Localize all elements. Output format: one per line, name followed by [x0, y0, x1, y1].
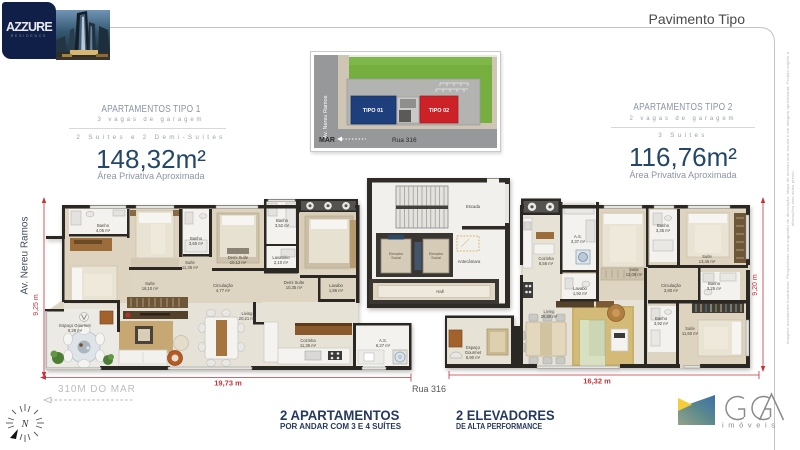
- svg-text:3,25 m²: 3,25 m²: [707, 286, 722, 291]
- svg-text:N: N: [21, 419, 30, 430]
- svg-text:3,65 m²: 3,65 m²: [189, 241, 204, 246]
- svg-text:9,25 m: 9,25 m: [33, 294, 40, 316]
- svg-text:26,86 m²: 26,86 m²: [541, 314, 558, 319]
- svg-text:3,52 m²: 3,52 m²: [275, 223, 290, 228]
- svg-text:TIPO 01: TIPO 01: [363, 108, 383, 114]
- svg-text:Antecâmara: Antecâmara: [458, 259, 481, 264]
- svg-text:Hall: Hall: [436, 289, 443, 294]
- svg-text:4,77 m²: 4,77 m²: [216, 288, 231, 293]
- svg-text:16,32 m: 16,32 m: [583, 377, 611, 386]
- svg-text:19,73 m: 19,73 m: [214, 379, 242, 388]
- svg-text:imóveis: imóveis: [722, 421, 780, 430]
- svg-text:11,60 m²: 11,60 m²: [682, 331, 699, 336]
- svg-text:1,92 m²: 1,92 m²: [573, 291, 588, 296]
- svg-text:9,20 m: 9,20 m: [752, 274, 759, 296]
- svg-text:1,86 m²: 1,86 m²: [329, 288, 344, 293]
- svg-text:Social: Social: [391, 256, 401, 260]
- svg-text:20,21 m²: 20,21 m²: [239, 316, 256, 321]
- svg-text:10,12 m²: 10,12 m²: [230, 260, 247, 265]
- svg-text:Rua 316: Rua 316: [392, 137, 417, 144]
- svg-text:Escada: Escada: [466, 204, 481, 209]
- svg-text:6,90 m²: 6,90 m²: [466, 355, 481, 360]
- svg-text:MAR: MAR: [319, 137, 335, 144]
- svg-text:11,36 m²: 11,36 m²: [300, 343, 317, 348]
- svg-text:13,45 m²: 13,45 m²: [699, 259, 716, 264]
- svg-text:3,80 m²: 3,80 m²: [664, 288, 679, 293]
- svg-text:11,36 m²: 11,36 m²: [182, 265, 199, 270]
- svg-text:9,38 m²: 9,38 m²: [68, 328, 83, 333]
- svg-text:3,37 m²: 3,37 m²: [571, 239, 586, 244]
- svg-text:8,56 m²: 8,56 m²: [539, 261, 554, 266]
- svg-text:12,08 m²: 12,08 m²: [626, 272, 643, 277]
- svg-text:Av. Nereu Ramos: Av. Nereu Ramos: [323, 95, 329, 138]
- svg-text:3,92 m²: 3,92 m²: [654, 321, 669, 326]
- svg-text:Social: Social: [431, 256, 441, 260]
- svg-text:TIPO 02: TIPO 02: [429, 108, 449, 114]
- svg-text:4,05 m²: 4,05 m²: [96, 228, 111, 233]
- svg-text:10,35 m²: 10,35 m²: [286, 285, 303, 290]
- svg-text:6,27 m²: 6,27 m²: [376, 343, 391, 348]
- svg-text:2,10 m²: 2,10 m²: [274, 260, 289, 265]
- svg-text:3,35 m²: 3,35 m²: [656, 228, 671, 233]
- svg-text:16,10 m²: 16,10 m²: [142, 286, 159, 291]
